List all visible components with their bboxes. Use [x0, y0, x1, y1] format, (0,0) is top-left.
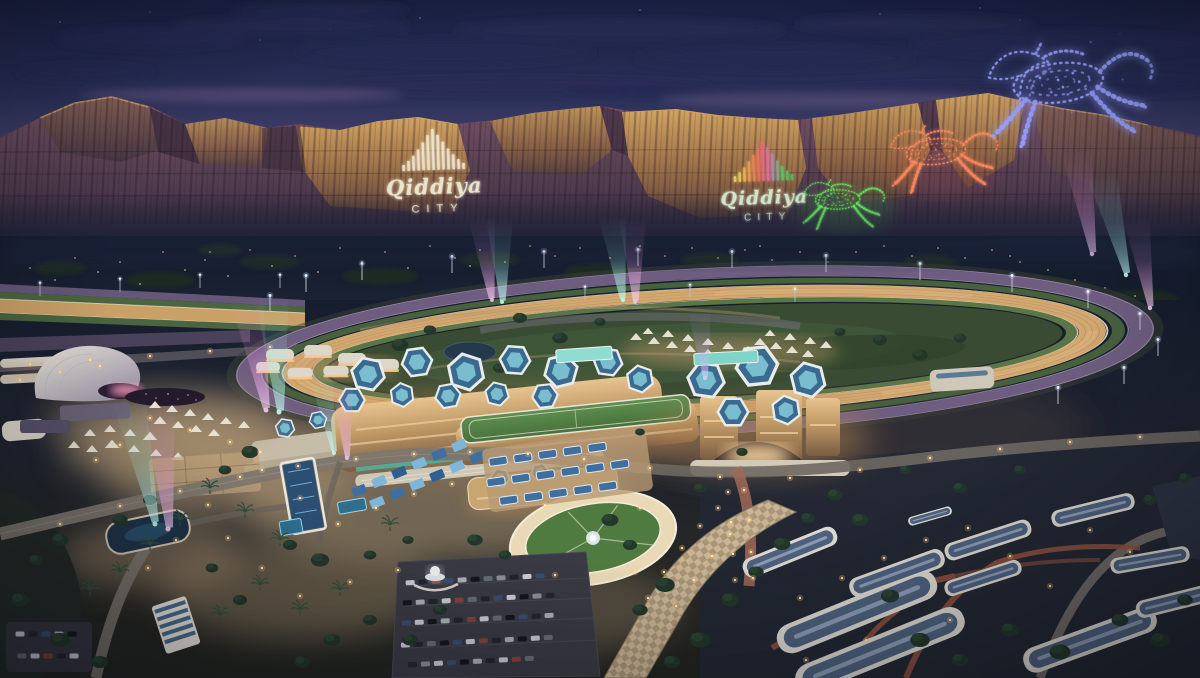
qiddiya-aerial-render: Qiddiya CITY Qiddiya CITY	[0, 0, 1200, 678]
vignette	[0, 0, 1200, 678]
